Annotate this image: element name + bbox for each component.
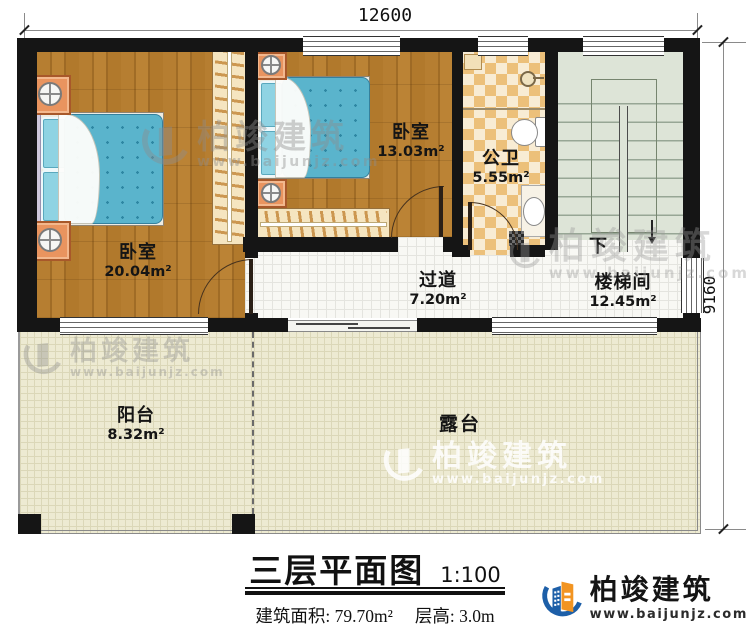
room-name: 楼梯间 (572, 273, 674, 294)
room-area: 8.32m² (88, 427, 184, 444)
wall (245, 237, 258, 258)
room-label-bedroom-top: 卧室 13.03m² (355, 123, 467, 160)
floorplan-page: 12600 9160 (0, 0, 750, 635)
room-area: 5.55m² (457, 170, 545, 187)
window (478, 36, 528, 56)
stair-arrow-line (651, 220, 653, 237)
sink-basin-icon (523, 197, 545, 226)
balcony-terrace-divider (252, 332, 254, 514)
stair-direction-label: 下 (583, 237, 613, 258)
room-label-corridor: 过道 7.20m² (394, 271, 482, 308)
sliding-door (288, 320, 417, 332)
wall (657, 318, 701, 332)
column (232, 514, 255, 534)
lamp-icon (261, 183, 281, 203)
room-area: 13.03m² (355, 144, 467, 161)
door-leaf (468, 202, 472, 250)
room-label-terrace: 露台 (428, 414, 492, 436)
drawing-title: 三层平面图 (249, 544, 424, 592)
window (583, 36, 664, 56)
dim-top-value: 12600 (320, 5, 450, 27)
wall (208, 318, 288, 332)
wall (683, 38, 700, 258)
wall (417, 318, 492, 332)
room-area: 7.20m² (394, 292, 482, 309)
window (492, 317, 657, 335)
title-underline-thin (245, 587, 505, 589)
brand-website: www.baijunjz.com (590, 607, 748, 622)
dim-right-line (723, 42, 724, 530)
drawing-title-row: 三层平面图 1:100 (225, 544, 525, 592)
dim-right-ext-bottom (705, 529, 746, 530)
room-name: 公卫 (457, 149, 545, 170)
stair-arrow-head (648, 237, 656, 244)
brand-logo-icon (540, 570, 582, 628)
room-area: 20.04m² (82, 264, 194, 281)
room-name: 阳台 (88, 406, 184, 427)
lamp-icon (38, 228, 62, 252)
wall (528, 38, 583, 52)
lamp-icon (261, 55, 281, 75)
window (681, 258, 704, 313)
wall (17, 318, 60, 332)
window (60, 317, 208, 335)
shower-head-icon (520, 71, 536, 87)
wall (245, 52, 258, 237)
room-label-balcony: 阳台 8.32m² (88, 406, 184, 443)
room-label-stairwell: 楼梯间 12.45m² (572, 273, 674, 310)
bathroom-partition (463, 108, 545, 110)
sliding-panel (296, 323, 358, 325)
building-area-text: 建筑面积: 79.70m² (255, 603, 392, 628)
window (303, 36, 400, 56)
stair-center-rail (619, 106, 628, 252)
wall (545, 52, 558, 250)
room-area: 12.45m² (572, 294, 674, 311)
title-underline-thick (245, 591, 505, 595)
brand-name: 柏竣建筑 (590, 576, 748, 604)
wall (400, 38, 478, 52)
wardrobe-rail (227, 51, 232, 242)
wardrobe-rail (260, 222, 387, 227)
sliding-panel (348, 327, 410, 329)
bathroom-shelf (464, 54, 482, 70)
dim-top-ext-right (697, 13, 698, 39)
wall (17, 38, 37, 332)
room-label-bathroom: 公卫 5.55m² (457, 149, 545, 186)
column (18, 514, 41, 534)
floor-height-text: 层高: 3.0m (415, 603, 495, 628)
drawing-info-row: 建筑面积: 79.70m² 层高: 3.0m (225, 603, 525, 628)
toilet-bowl-icon (511, 119, 538, 146)
wardrobe (212, 48, 247, 245)
lamp-icon (38, 82, 62, 106)
room-name: 卧室 (82, 243, 194, 264)
door-leaf (249, 259, 253, 314)
drawing-scale: 1:100 (440, 563, 501, 587)
wall (17, 38, 303, 52)
room-name: 卧室 (355, 123, 467, 144)
door-leaf (439, 186, 443, 237)
room-label-bedroom-left: 卧室 20.04m² (82, 243, 194, 280)
room-name: 过道 (394, 271, 482, 292)
shower-arm (533, 77, 544, 79)
dim-top-line (24, 30, 698, 31)
brand-logo: 柏竣建筑 www.baijunjz.com (540, 568, 748, 630)
wall (243, 237, 398, 252)
